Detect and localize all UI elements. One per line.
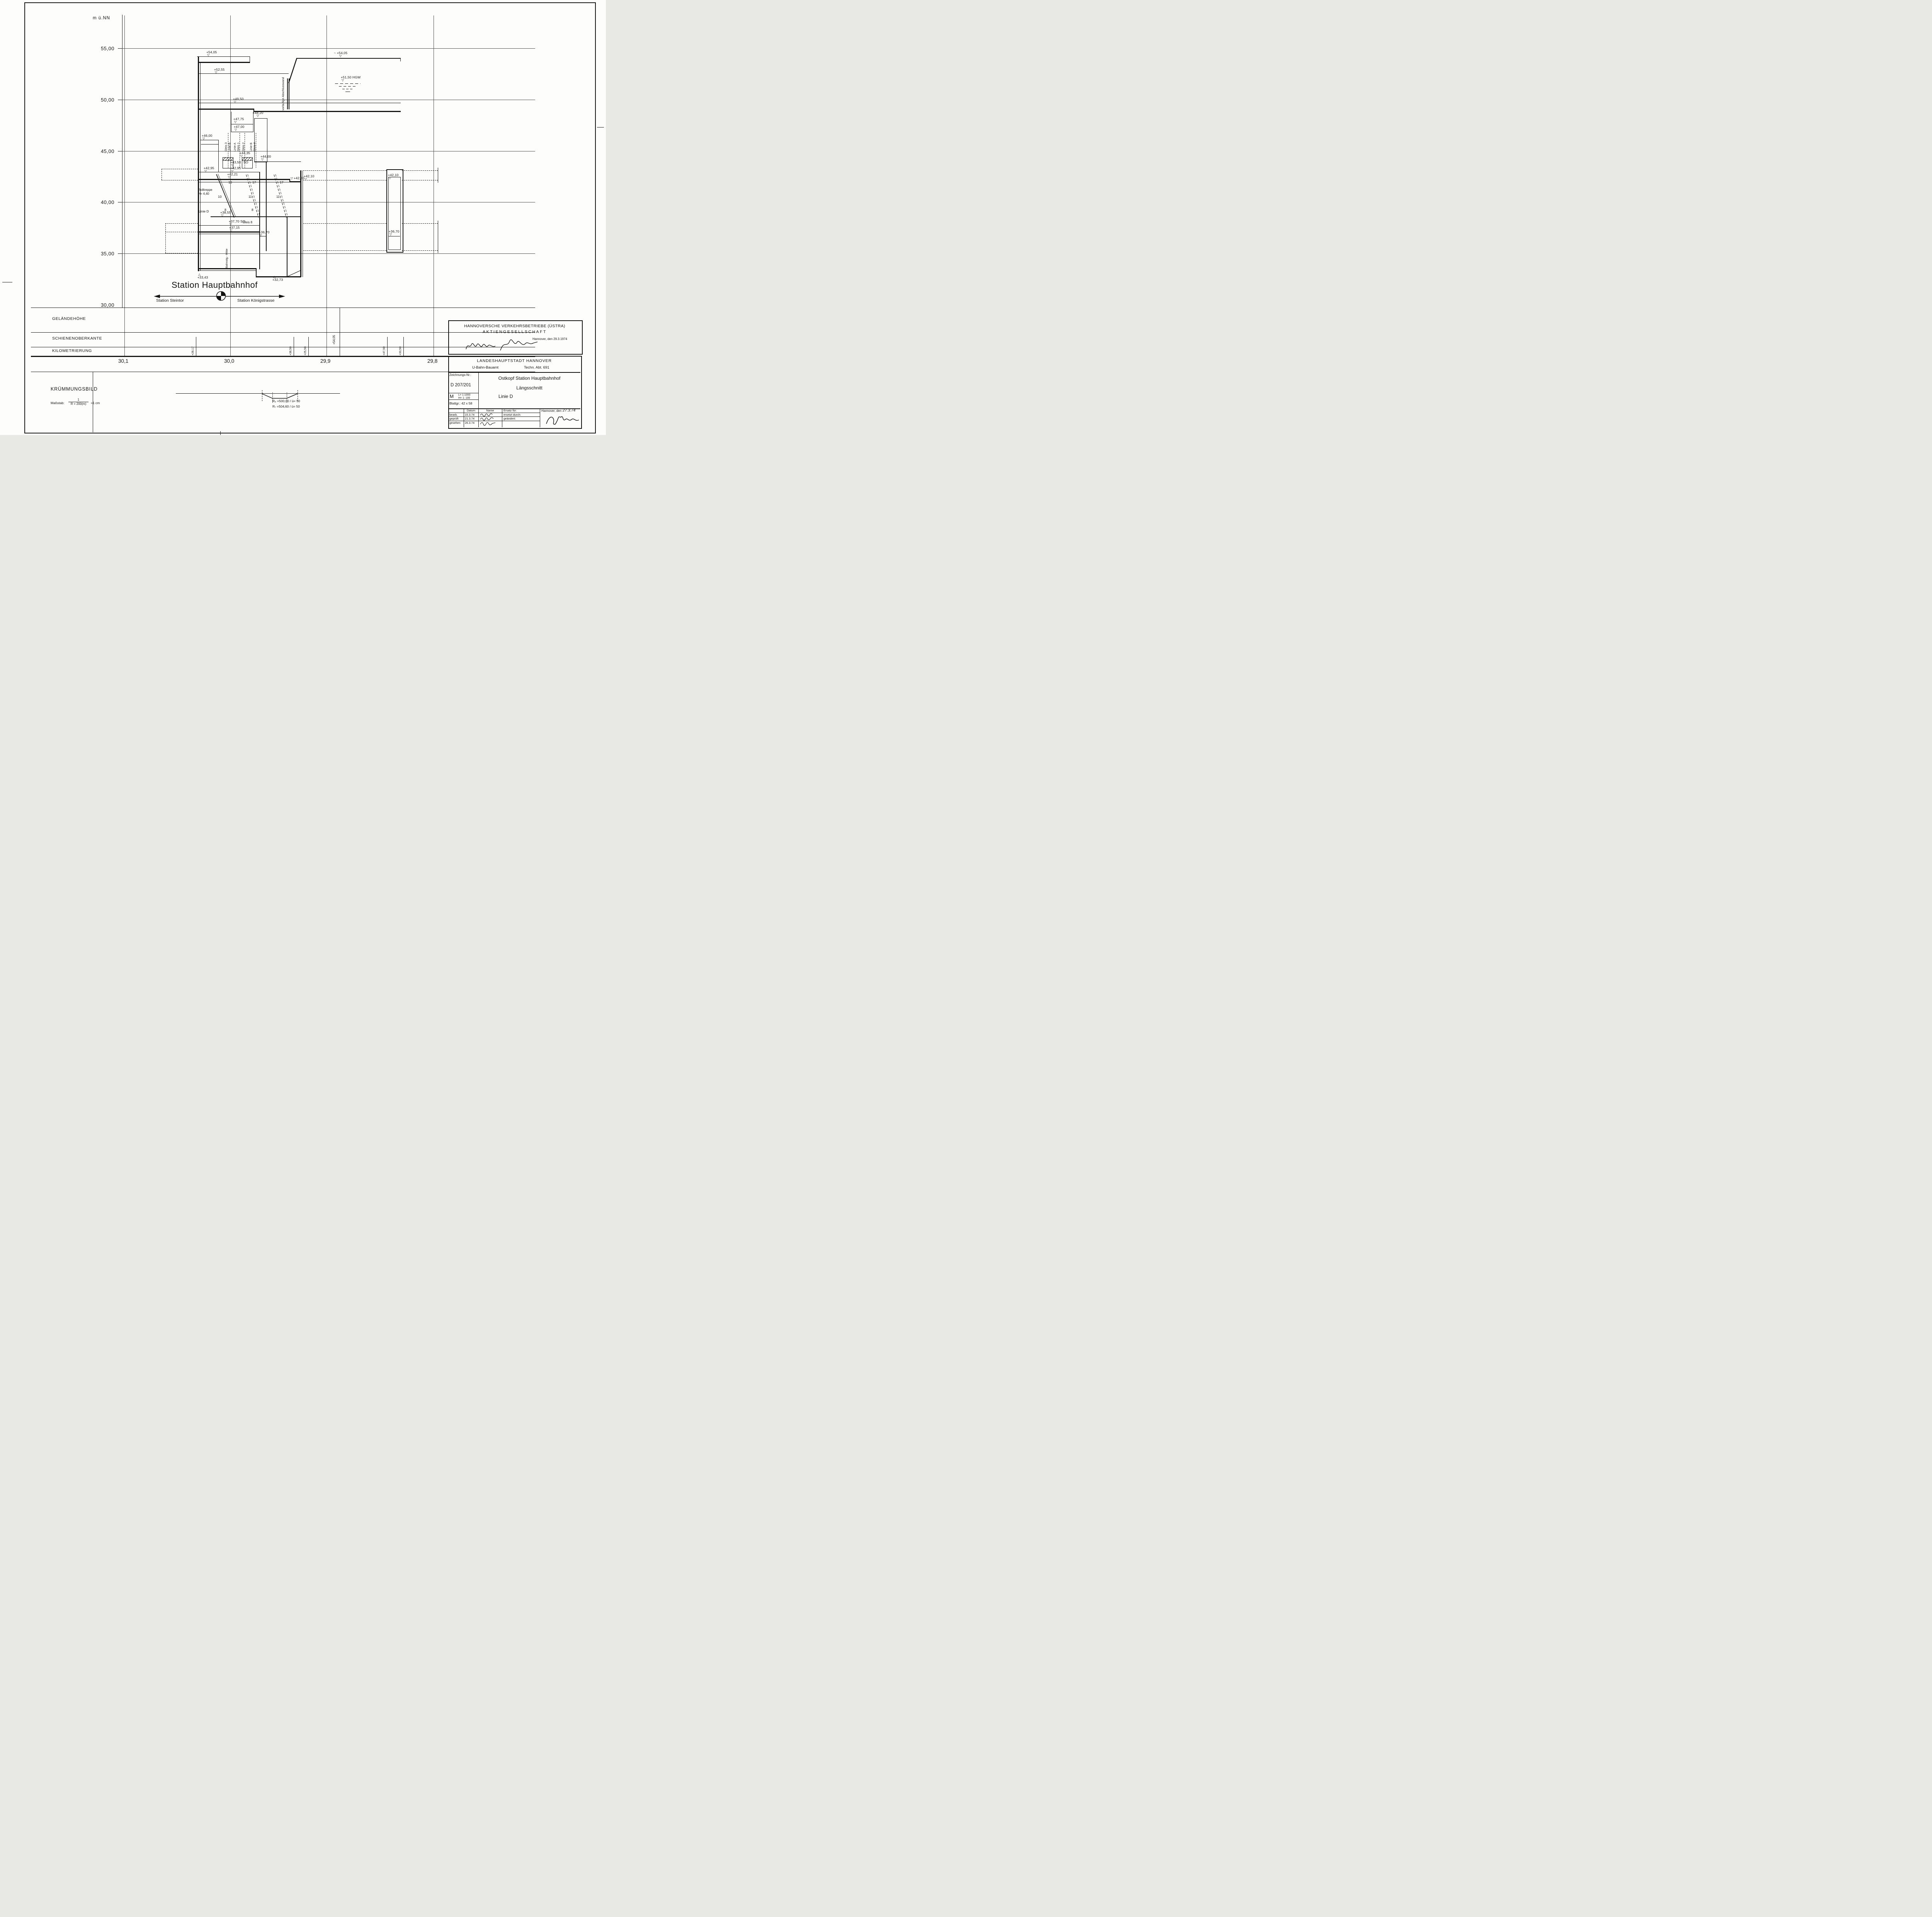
arrowhead-right [279, 295, 285, 298]
pit-slope [287, 270, 301, 277]
signature-small [480, 423, 495, 426]
arrowhead-left [154, 295, 160, 298]
vector-overlay [0, 0, 606, 435]
curvature-trapezoid [262, 394, 298, 398]
ground-slope [289, 58, 297, 83]
stair-dashed [276, 174, 288, 217]
survey-point-quadrant [221, 292, 226, 296]
signature [500, 340, 537, 350]
stair-dashed [246, 175, 259, 218]
escalator-line-inner [218, 174, 236, 217]
escalator-line [216, 174, 234, 218]
signature-small [480, 418, 493, 420]
signature-small [480, 414, 492, 416]
drawing-sheet: m ü.NN 55,00 50,00 45,00 40,00 35,00 30,… [0, 0, 606, 435]
signature [466, 343, 495, 349]
stair-dashed [274, 175, 286, 218]
signature-large [546, 416, 579, 424]
stair-dashed [248, 174, 260, 217]
survey-point-quadrant [217, 296, 221, 301]
